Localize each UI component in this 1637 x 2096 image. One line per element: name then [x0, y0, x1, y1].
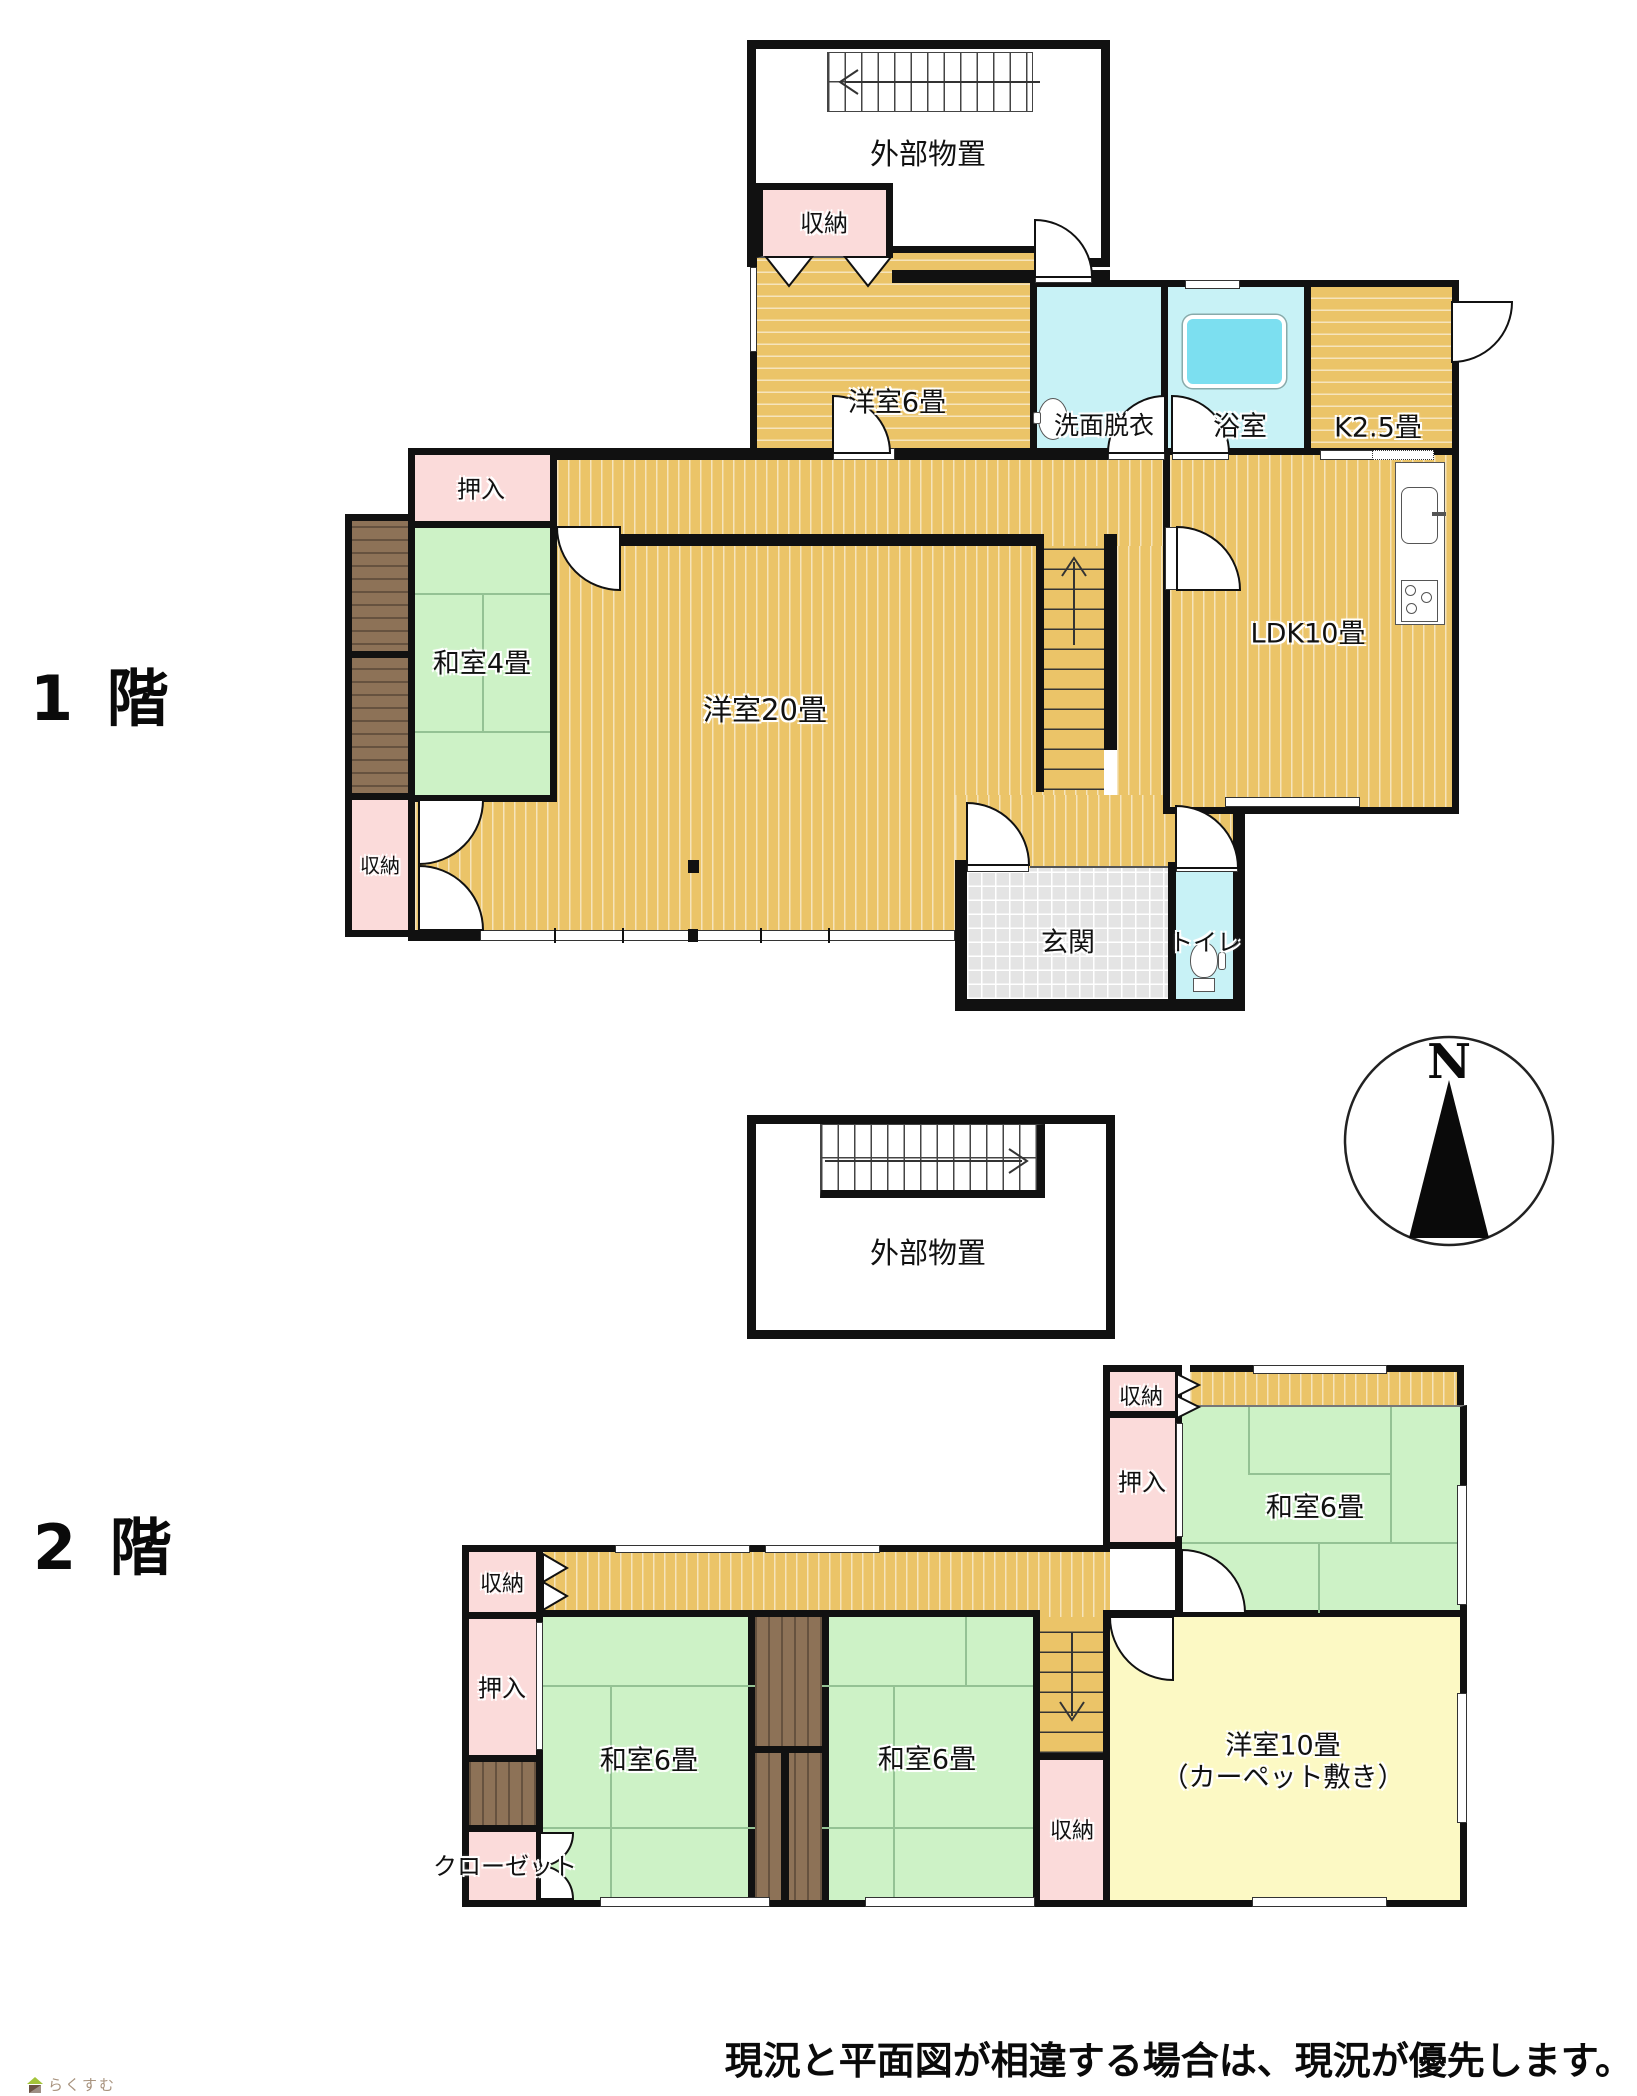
tatami-line: [1182, 1542, 1460, 1544]
room-label-f2-washitsu6-right: 和室6畳: [1266, 1486, 1364, 1525]
compass-n: N: [1427, 1034, 1471, 1090]
window-tick: [554, 928, 556, 943]
f2-veranda-left-strip: [462, 1755, 543, 1832]
washbasin-tap: [1033, 412, 1041, 424]
window: [750, 267, 757, 352]
room-label-f2-closet: クローゼット: [433, 1847, 577, 1882]
room-label-f1-toilet: トイレ: [1169, 923, 1241, 958]
tatami-line: [822, 1685, 1033, 1687]
room-label-f2-shuno-bottom: 収納: [1050, 1813, 1094, 1845]
room-label-f2-yoshitsu10-line2: （カーペット敷き）: [1162, 1756, 1405, 1795]
f1-inner-stairs: [1044, 546, 1104, 790]
f1-veranda-strip-1: [345, 514, 415, 665]
room-label-f2-shuno-left: 収納: [480, 1566, 524, 1598]
door-gap: [967, 860, 1029, 872]
window: [1225, 797, 1360, 807]
genkan-edge-line: [1030, 866, 1168, 868]
door-gap: [1176, 860, 1238, 872]
wall: [781, 1753, 789, 1900]
tatami-line: [1318, 1542, 1320, 1613]
room-label-f1-washitsu4: 和室4畳: [433, 642, 531, 681]
door-gap: [1452, 302, 1459, 362]
window: [600, 1897, 770, 1907]
sliding-door: [1176, 1423, 1183, 1537]
tatami-line: [1248, 1407, 1250, 1473]
compass-needle: [1409, 1080, 1489, 1238]
tatami-line: [893, 1685, 895, 1897]
bathtub: [1183, 315, 1286, 388]
room-label-f1-genkan: 玄関: [1041, 921, 1095, 960]
door-gap: [1165, 527, 1177, 590]
tatami-line: [543, 1685, 755, 1687]
window: [615, 1545, 750, 1553]
door-gap: [1108, 448, 1165, 460]
f1-veranda-strip-2: [345, 651, 415, 807]
room-label-f1-ext-storage: 外部物置: [870, 131, 986, 173]
f1-storage-stairs: [827, 52, 1033, 112]
tatami-line: [1248, 1473, 1390, 1475]
f2-storage-stairs: [820, 1124, 1045, 1198]
wall: [955, 999, 1245, 1011]
door-arc: [1452, 302, 1512, 362]
site-logo: らくすむ: [26, 2074, 116, 2095]
room-label-f1-yoshitsu6: 洋室6畳: [848, 381, 946, 420]
room-label-f2-ext-storage: 外部物置: [870, 1230, 986, 1272]
sliding-door: [536, 1622, 543, 1750]
logo-house-icon: [26, 2076, 44, 2094]
tatami-line: [543, 1827, 755, 1829]
pillar: [688, 860, 699, 873]
f1-wood-band: [557, 455, 1168, 546]
room-label-f1-oshiire: 押入: [457, 470, 505, 505]
tatami-line: [965, 1617, 967, 1685]
wall: [1104, 534, 1117, 750]
tatami-line: [415, 731, 550, 733]
kitchen-tap: [1432, 512, 1446, 516]
room-label-f2-oshiire-right: 押入: [1118, 1463, 1166, 1498]
window: [1457, 1693, 1467, 1823]
window: [865, 1897, 1035, 1907]
tatami-line: [822, 1827, 1033, 1829]
floorplan-canvas: 外部物置 収納 洋室6畳 洗面脱衣 浴室 K2.5畳 押入 和室4畳 収納 洋室…: [0, 0, 1637, 2096]
room-label-f2-washitsu6-left: 和室6畳: [600, 1739, 698, 1778]
window: [1320, 450, 1375, 460]
window: [1372, 450, 1434, 460]
compass-circle: [1345, 1037, 1553, 1245]
door-gap: [833, 448, 895, 460]
door-gap: [1172, 448, 1229, 460]
room-label-f2-oshiire-left: 押入: [478, 1669, 526, 1704]
wall: [408, 930, 480, 941]
window-band: [480, 930, 955, 941]
toilet-tank: [1193, 978, 1215, 992]
compass: N: [1345, 1034, 1553, 1245]
room-label-f1-yoshitsu20: 洋室20畳: [703, 687, 827, 729]
window: [1252, 1897, 1387, 1907]
room-label-f1-senmen: 洗面脱衣: [1054, 406, 1154, 442]
door-gap: [1035, 270, 1092, 283]
room-label-f1-shuno-top: 収納: [800, 204, 848, 239]
floor2-label: 2 階: [33, 1497, 178, 1587]
tatami-line: [1390, 1407, 1392, 1542]
stove-burner: [1406, 603, 1417, 614]
room-label-f1-bath: 浴室: [1213, 405, 1267, 444]
f2-corridor: [543, 1545, 1110, 1619]
window-tick: [828, 928, 830, 943]
floor1-label: 1 階: [30, 648, 175, 738]
room-label-f2-washitsu6-mid: 和室6畳: [878, 1738, 976, 1777]
wall: [1036, 534, 1044, 792]
window: [1185, 280, 1240, 289]
room-label-f1-shuno-left: 収納: [360, 850, 400, 879]
wall: [688, 929, 698, 942]
disclaimer-text: 現況と平面図が相違する場合は、現況が優先します。: [725, 2030, 1633, 2085]
wall: [955, 860, 967, 1011]
window-tick: [760, 928, 762, 943]
room-label-f1-ldk: LDK10畳: [1251, 612, 1366, 651]
wall: [1033, 1613, 1040, 1753]
logo-text: らくすむ: [48, 2074, 116, 2095]
tatami-line: [610, 1685, 612, 1900]
wall: [620, 534, 1044, 546]
window: [1253, 1365, 1387, 1374]
f2-inner-stairs: [1040, 1617, 1103, 1753]
window-tick: [622, 928, 624, 943]
wall: [1233, 807, 1245, 1011]
stove-burner: [1421, 592, 1432, 603]
f2-center-strip-upper: [748, 1610, 829, 1760]
stove-burner: [1405, 585, 1416, 596]
room-label-f2-shuno-right: 収納: [1119, 1379, 1163, 1411]
window: [765, 1545, 880, 1553]
window: [1457, 1485, 1467, 1605]
room-label-f1-kitchen: K2.5畳: [1334, 406, 1422, 445]
